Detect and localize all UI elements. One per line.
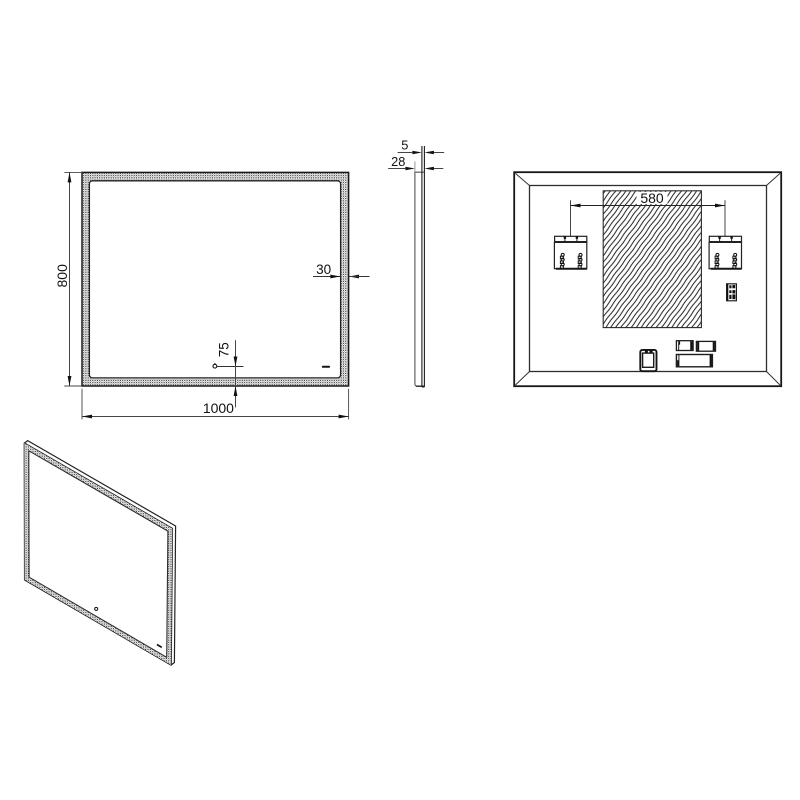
svg-text:580: 580 [640, 190, 664, 206]
svg-text:30: 30 [316, 262, 331, 277]
svg-text:800: 800 [54, 264, 70, 288]
svg-text:1000: 1000 [203, 400, 234, 416]
svg-text:28: 28 [391, 154, 405, 169]
svg-text:75: 75 [217, 342, 232, 357]
svg-text:5: 5 [401, 137, 408, 152]
